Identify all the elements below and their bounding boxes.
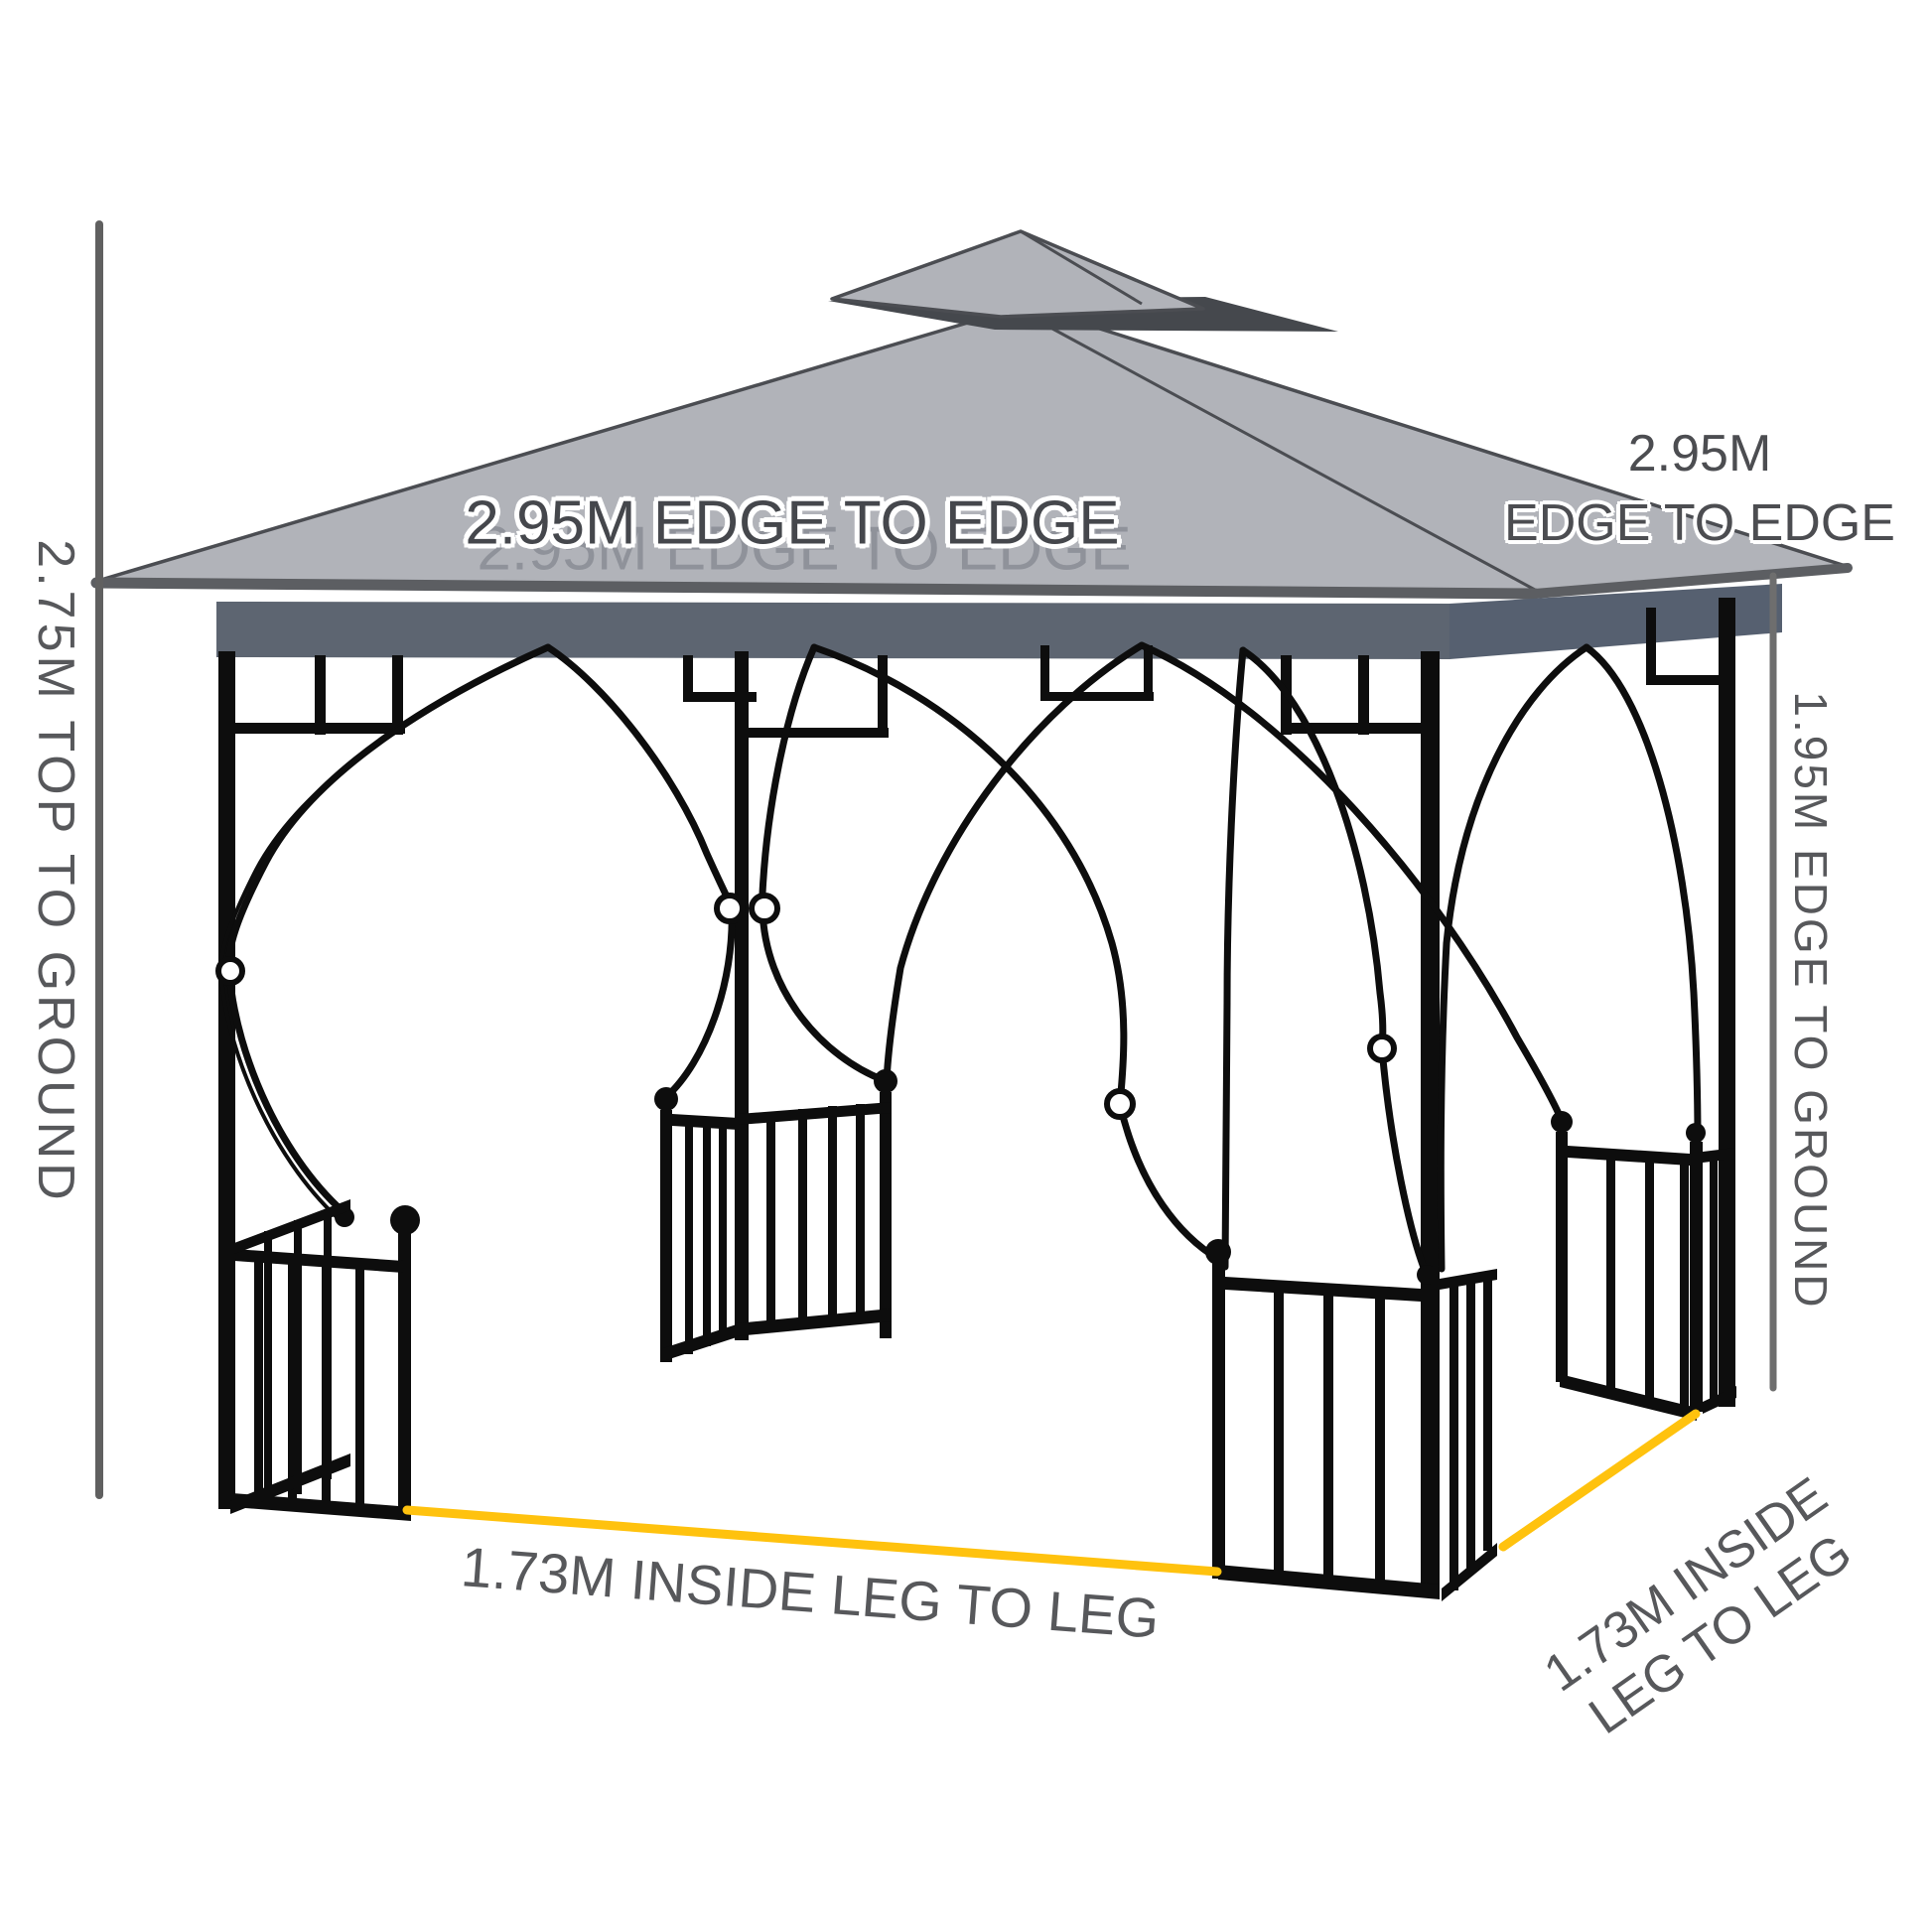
- ring-center-right: [1107, 1091, 1133, 1117]
- panel-bottom-rail: [736, 1309, 892, 1336]
- finial-ball: [874, 1069, 897, 1093]
- label-edge-to-edge-side-value: 2.95M: [1504, 419, 1895, 488]
- arch-rings: [218, 896, 1394, 1117]
- panel-bar: [355, 1266, 364, 1510]
- panel-front-right: [1205, 1239, 1497, 1601]
- arch-tip-knob: [1417, 1265, 1437, 1285]
- arch-front-right-bay-left-branch: [1225, 650, 1243, 1267]
- finial-ball: [1551, 1111, 1573, 1133]
- bracket-back-left-rail1: [683, 692, 757, 702]
- ring-center-a: [717, 896, 743, 921]
- panel-top-rail: [739, 1102, 892, 1125]
- bracket-back-center-bar1: [1040, 645, 1049, 700]
- finial-ball: [1686, 1123, 1706, 1143]
- label-edge-to-edge-front: 2.95M EDGE TO EDGE: [465, 488, 1119, 559]
- panel-stub-post: [1690, 1142, 1703, 1412]
- panel-side-bar: [1483, 1273, 1492, 1551]
- bracket-back-right-bar: [1646, 608, 1656, 683]
- arch-front-right-bay-right-branch: [1243, 650, 1426, 1273]
- panel-bar: [1323, 1291, 1333, 1579]
- dimension-line-leg-to-leg-side: [1503, 1414, 1696, 1547]
- bracket-back-left-rail2: [740, 728, 889, 738]
- panel-top-rail: [1225, 1277, 1421, 1302]
- arch-center-bay-right-branch: [814, 647, 1218, 1259]
- panel-side-bar: [1466, 1277, 1475, 1571]
- panel-bar: [1375, 1295, 1385, 1583]
- panel-bar: [719, 1122, 727, 1338]
- label-edge-to-edge-side-text: EDGE TO EDGE: [1504, 488, 1895, 558]
- panel-side-bar: [264, 1231, 272, 1507]
- label-top-to-ground: 2.75M TOP TO GROUND: [26, 539, 85, 1203]
- panel-bar: [798, 1109, 807, 1325]
- bracket-back-left-bar2: [878, 655, 888, 735]
- panel-bar: [1274, 1287, 1284, 1575]
- panel-bar: [766, 1112, 775, 1330]
- gazebo-dimension-diagram: 2.75M TOP TO GROUND 2.95M EDGE TO EDGE 2…: [0, 0, 1932, 1932]
- arch-left-bay-right-branch: [548, 647, 732, 1097]
- arch-right-bay-right-branch: [1587, 647, 1698, 1142]
- arch-back-bay-left-branch: [887, 645, 1142, 1080]
- ring-right: [1370, 1036, 1394, 1060]
- panel-stub-post: [398, 1231, 411, 1517]
- panel-side-bar: [1724, 1154, 1731, 1400]
- canopy-top-tier: [832, 231, 1203, 317]
- panel-stub-post: [880, 1092, 892, 1338]
- panel-side-bar: [294, 1220, 302, 1494]
- panel-bar: [1680, 1162, 1689, 1406]
- panel-bar: [828, 1106, 837, 1320]
- panel-bar: [856, 1104, 865, 1316]
- finial-ball: [390, 1205, 420, 1235]
- panel-bar: [1606, 1154, 1615, 1392]
- panel-bottom-rail: [663, 1323, 740, 1361]
- panel-bar: [254, 1257, 263, 1503]
- panel-back-right: [1551, 1111, 1736, 1421]
- post-front-left: [218, 651, 235, 1509]
- panel-side-bar: [324, 1209, 332, 1479]
- panel-bar: [1645, 1158, 1654, 1398]
- onion-arches: [220, 645, 1698, 1273]
- post-front-right: [1421, 651, 1440, 1589]
- ring-center-b: [752, 896, 777, 921]
- finial-ball: [1205, 1239, 1231, 1265]
- post-back-left: [735, 651, 749, 1340]
- panel-side-bar: [1449, 1281, 1458, 1590]
- panel-bar: [685, 1118, 693, 1354]
- bracket-front-left-rail: [234, 723, 405, 734]
- bracket-back-center-rail: [1040, 692, 1154, 701]
- panel-bottom-rail: [1560, 1374, 1697, 1421]
- panel-bar: [703, 1120, 711, 1346]
- panel-stub-post: [1212, 1263, 1225, 1579]
- finial-ball: [654, 1087, 678, 1111]
- ring-left: [218, 959, 242, 983]
- frame-posts: [218, 598, 1735, 1589]
- bracket-back-right-rail: [1646, 675, 1725, 685]
- label-edge-to-ground: 1.95M EDGE TO GROUND: [1784, 691, 1838, 1310]
- panel-back-left: [654, 1069, 897, 1362]
- arch-back-bay-right-branch: [1142, 645, 1565, 1128]
- panel-side-bar: [1710, 1156, 1718, 1406]
- label-edge-to-edge-side: 2.95M EDGE TO EDGE: [1504, 419, 1895, 558]
- arch-center-bay-left-branch: [762, 647, 884, 1080]
- panel-stub-post: [1556, 1132, 1568, 1382]
- panel-top-rail: [1568, 1146, 1690, 1166]
- panel-side-top-rail: [234, 1199, 350, 1254]
- panel-front-left: [230, 1199, 420, 1521]
- panel-stub-post: [660, 1110, 672, 1362]
